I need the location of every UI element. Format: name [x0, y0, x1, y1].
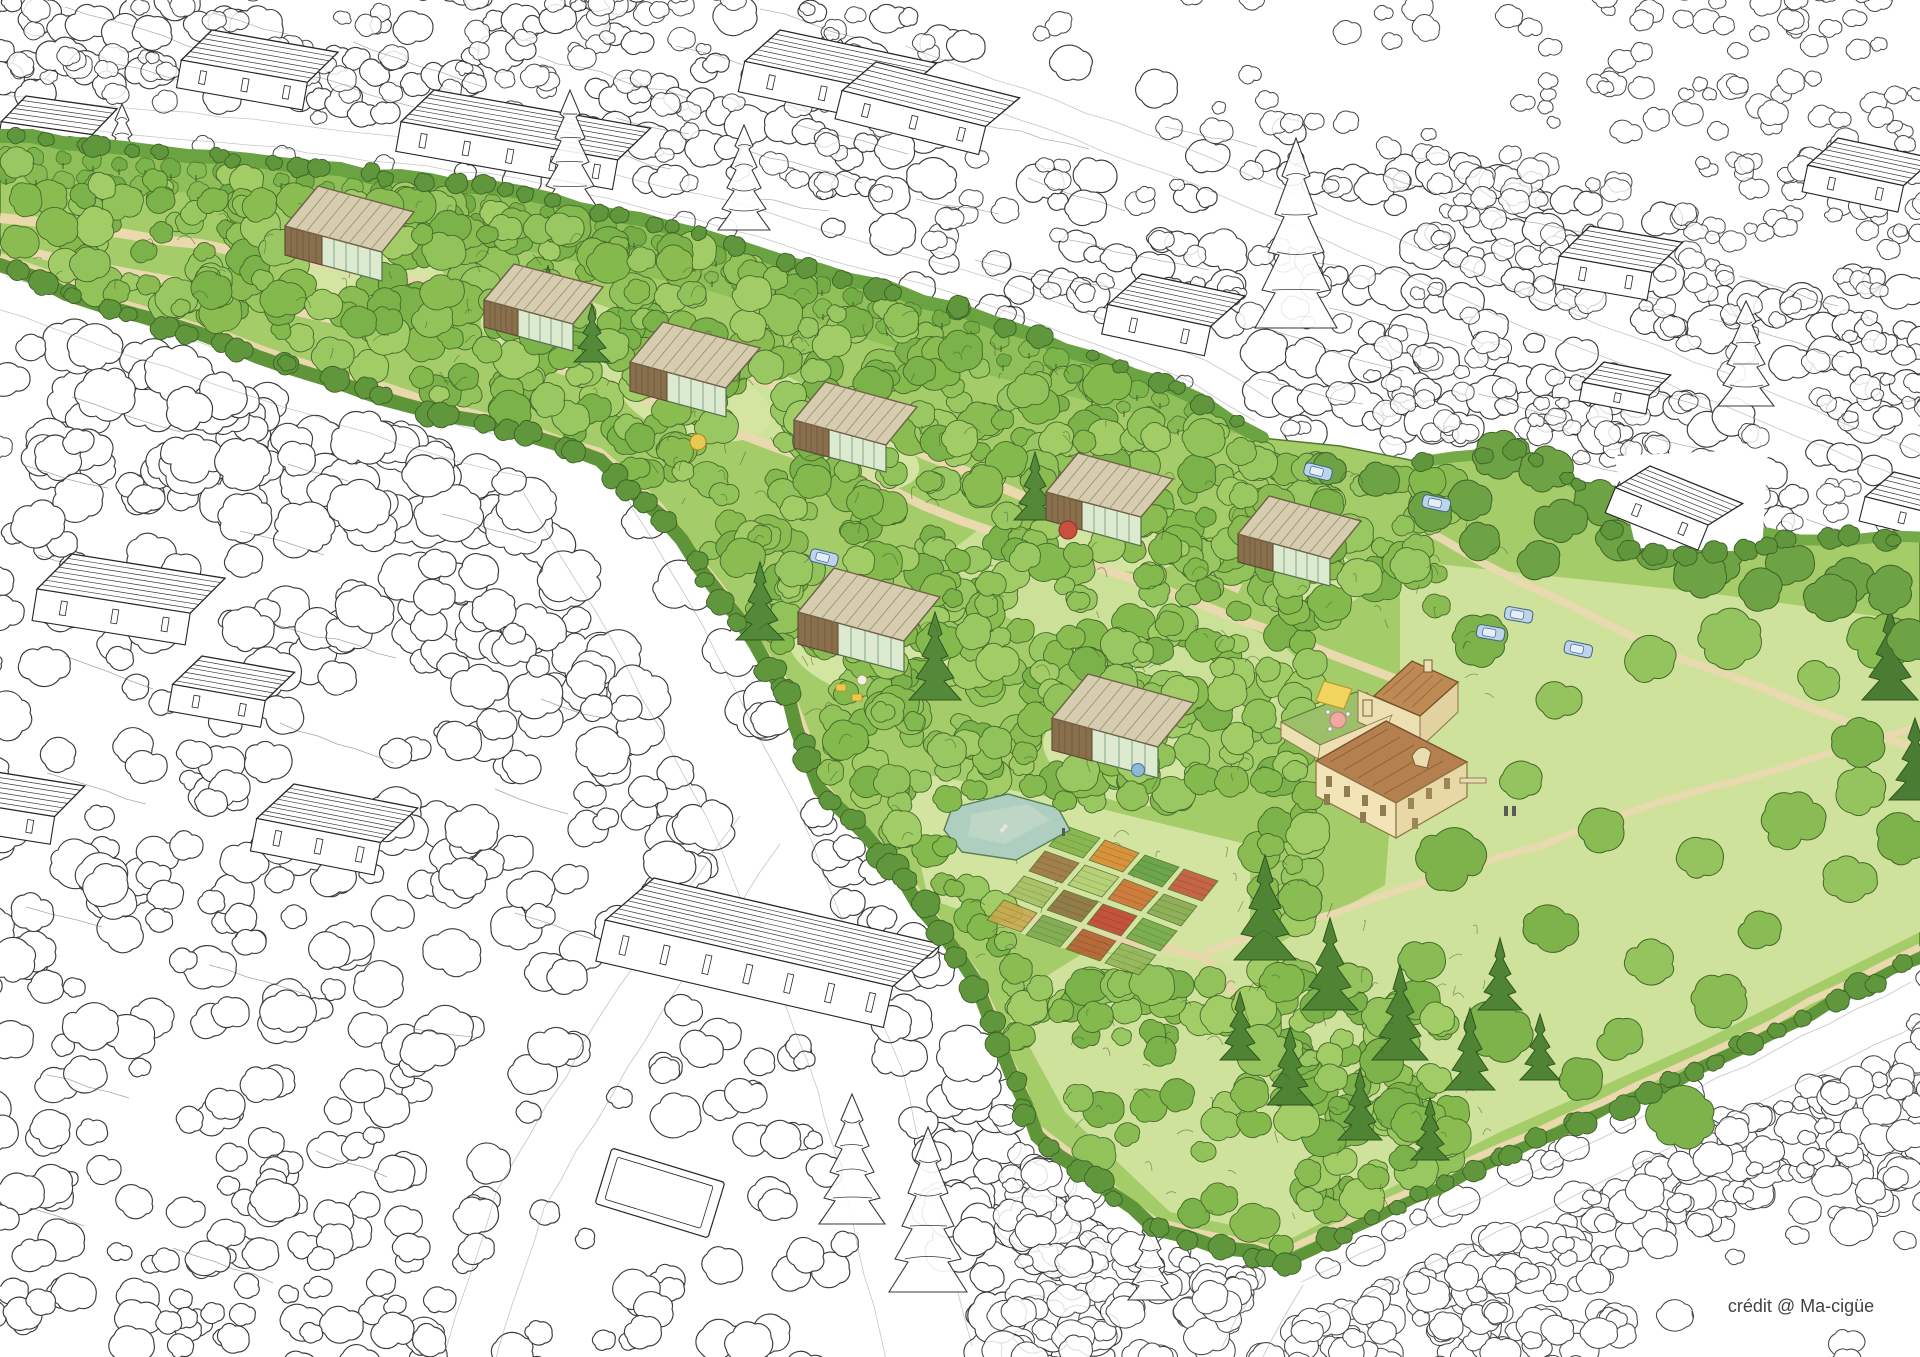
svg-text:crédit @ Ma-cigüe: crédit @ Ma-cigüe: [1728, 1296, 1874, 1316]
